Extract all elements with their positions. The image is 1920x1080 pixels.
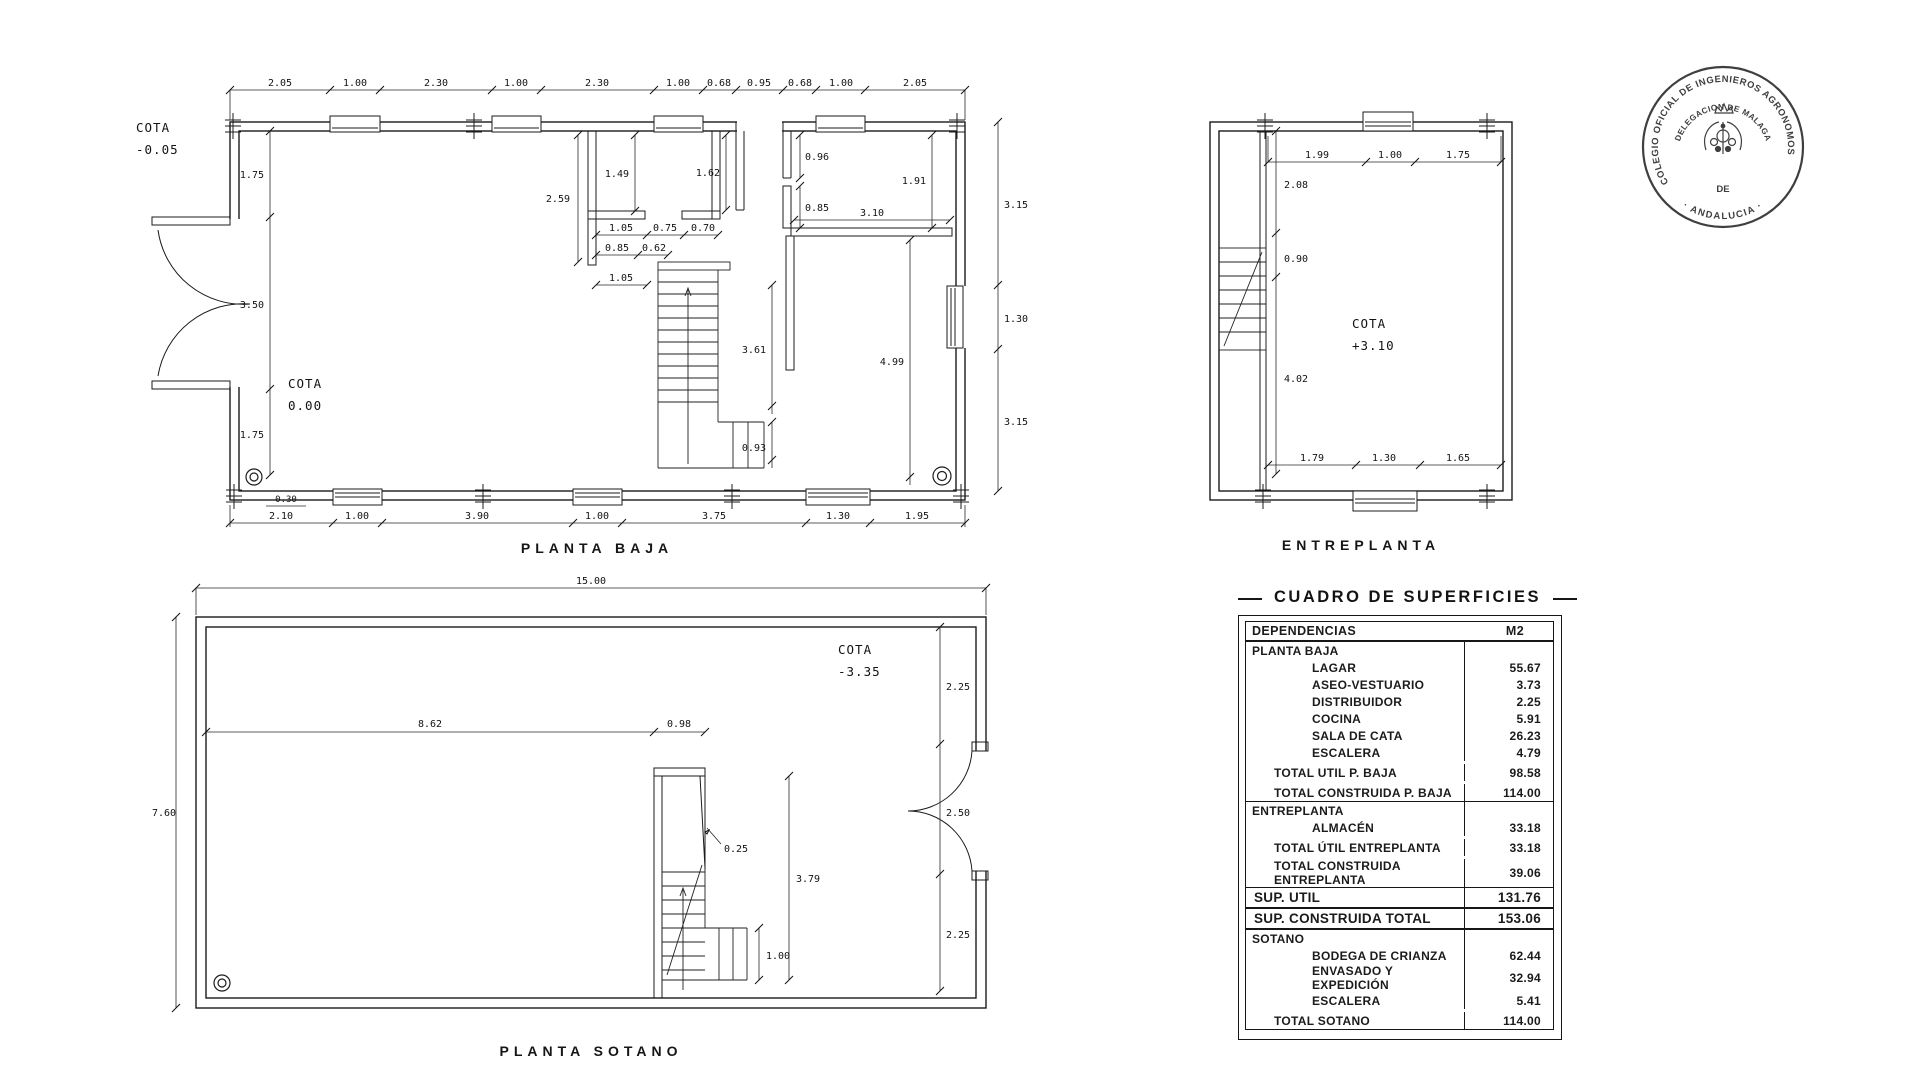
dim-label: 0.30	[275, 495, 297, 505]
wall-break-icon	[1257, 113, 1273, 139]
window	[1353, 491, 1417, 511]
planta-sotano-drawing: 15.00 7.60 2.25 2.50 2.25 8.62 0.98 0.25…	[140, 560, 1040, 1070]
dim-label: 0.90	[1284, 254, 1308, 265]
table-row: COCINA 5.91	[1246, 710, 1553, 727]
cota-label: COTA	[136, 120, 170, 135]
dim-label: 3.79	[796, 874, 820, 885]
partition-wall	[791, 228, 952, 236]
interior-wall-face	[206, 627, 976, 998]
surface-table-header: DEPENDENCIAS M2	[1246, 622, 1553, 641]
table-row: TOTAL UTIL P. BAJA 98.58	[1246, 761, 1553, 781]
dim-label: 1.05	[609, 273, 633, 284]
dim-label: 1.00	[766, 951, 790, 962]
table-row: DISTRIBUIDOR 2.25	[1246, 693, 1553, 710]
dim-label: 1.00	[345, 511, 369, 522]
window	[492, 116, 541, 136]
row-label: TOTAL CONSTRUIDA ENTREPLANTA	[1246, 859, 1465, 887]
dim-label: 0.70	[691, 223, 715, 234]
row-value: 153.06	[1465, 909, 1553, 928]
dim-label: 1.95	[905, 511, 929, 522]
plan-title: PLANTA BAJA	[521, 540, 673, 556]
dim-label: 2.05	[268, 78, 292, 89]
dim-label: 1.00	[1378, 150, 1402, 161]
table-row: SUP. CONSTRUIDA TOTAL 153.06	[1246, 908, 1553, 929]
wall-break-icon	[1479, 484, 1495, 509]
window	[573, 486, 622, 505]
wall-break-icon	[1255, 484, 1271, 509]
table-row: ASEO-VESTUARIO 3.73	[1246, 676, 1553, 693]
table-row: PLANTA BAJA	[1246, 641, 1553, 659]
partition-wall	[654, 768, 705, 776]
surface-table-outer-frame: DEPENDENCIAS M2 PLANTA BAJA LAGAR 55.67 …	[1238, 615, 1562, 1040]
dim-label: 2.25	[946, 682, 970, 693]
row-value: 33.18	[1465, 839, 1553, 856]
dim-label: 3.15	[1004, 200, 1028, 211]
interior-wall-face	[239, 131, 956, 491]
table-row: SALA DE CATA 26.23	[1246, 727, 1553, 744]
row-value: 114.00	[1465, 784, 1553, 801]
row-label: COCINA	[1246, 710, 1465, 727]
window	[947, 286, 966, 348]
entreplanta-plan: 1.99 1.00 1.75 2.08 0.90 4.02 1.79 1.30 …	[1180, 50, 1580, 575]
row-label: ENVASADO Y EXPEDICIÓN	[1246, 964, 1465, 992]
exterior-wall	[230, 122, 965, 500]
cota-label: COTA	[288, 376, 322, 391]
dim-label: 0.75	[653, 223, 677, 234]
plan-title: ENTREPLANTA	[1282, 537, 1440, 553]
cota-label: COTA	[838, 642, 872, 657]
row-value: 39.06	[1465, 859, 1553, 887]
entreplanta-drawing: 1.99 1.00 1.75 2.08 0.90 4.02 1.79 1.30 …	[1180, 50, 1580, 580]
surface-table-title-row: CUADRO DE SUPERFICIES	[1238, 588, 1562, 607]
dim-label: 4.02	[1284, 374, 1308, 385]
dim-label: 3.15	[1004, 417, 1028, 428]
stairs	[1219, 248, 1266, 350]
row-value: 5.41	[1465, 992, 1553, 1009]
row-value: 5.91	[1465, 710, 1553, 727]
row-label: SOTANO	[1246, 930, 1465, 947]
table-row: ALMACÉN 33.18	[1246, 819, 1553, 836]
window	[654, 116, 703, 136]
row-label: TOTAL SOTANO	[1246, 1012, 1465, 1029]
dim-label: 0.68	[707, 78, 731, 89]
row-value: 98.58	[1465, 764, 1553, 781]
porch-wall	[152, 381, 230, 389]
column-marker	[246, 467, 951, 485]
dim-label: 1.05	[609, 223, 633, 234]
row-label: ENTREPLANTA	[1246, 802, 1465, 819]
dim-label: 0.85	[805, 203, 829, 214]
surface-table-body: PLANTA BAJA LAGAR 55.67 ASEO-VESTUARIO 3…	[1246, 641, 1553, 1029]
row-label: ASEO-VESTUARIO	[1246, 676, 1465, 693]
column-header-m2: M2	[1477, 622, 1553, 640]
dim-label: 0.62	[642, 243, 666, 254]
dim-label: 0.25	[724, 844, 748, 855]
dim-label: 1.75	[240, 430, 264, 441]
column-marker	[214, 975, 230, 991]
row-value	[1465, 802, 1553, 819]
dim-label: 1.00	[829, 78, 853, 89]
wall-break-icon	[1479, 113, 1495, 139]
column-header-dependencias: DEPENDENCIAS	[1246, 622, 1477, 640]
row-value: 26.23	[1465, 727, 1553, 744]
dim-label: 2.30	[585, 78, 609, 89]
row-label: TOTAL CONSTRUIDA P. BAJA	[1246, 784, 1465, 801]
table-row: ESCALERA 5.41	[1246, 992, 1553, 1009]
stairs	[658, 262, 764, 468]
dim-label: 1.99	[1305, 150, 1329, 161]
wall-break-icon	[724, 484, 740, 509]
window	[806, 486, 870, 505]
interior-wall-face	[1219, 131, 1503, 491]
porch-wall	[152, 217, 230, 225]
row-label: TOTAL ÚTIL ENTREPLANTA	[1246, 839, 1465, 856]
row-value: 2.25	[1465, 693, 1553, 710]
dim-label: 0.68	[788, 78, 812, 89]
dim-label: 1.00	[504, 78, 528, 89]
row-label: SUP. CONSTRUIDA TOTAL	[1246, 909, 1465, 928]
dim-label: 8.62	[418, 719, 442, 730]
dim-label: 3.90	[465, 511, 489, 522]
table-row: TOTAL ÚTIL ENTREPLANTA 33.18	[1246, 836, 1553, 856]
row-value: 131.76	[1465, 888, 1553, 907]
dim-label: 2.59	[546, 194, 570, 205]
wall-break-icon	[466, 113, 482, 139]
title-dash-icon	[1553, 598, 1577, 600]
dim-label: 2.10	[269, 511, 293, 522]
dim-label: 1.75	[1446, 150, 1470, 161]
dim-label: 0.95	[747, 78, 771, 89]
dim-label: 0.98	[667, 719, 691, 730]
table-row: ENTREPLANTA	[1246, 801, 1553, 819]
dim-label: 15.00	[576, 576, 606, 587]
row-value: 114.00	[1465, 1012, 1553, 1029]
table-row: SOTANO	[1246, 929, 1553, 947]
dim-label: 1.91	[902, 176, 926, 187]
row-label: ESCALERA	[1246, 744, 1465, 761]
planta-sotano-plan: 15.00 7.60 2.25 2.50 2.25 8.62 0.98 0.25…	[140, 560, 1040, 1065]
table-row: TOTAL SOTANO 114.00	[1246, 1009, 1553, 1029]
cota-label: 0.00	[288, 398, 322, 413]
dim-label: 1.75	[240, 170, 264, 181]
dim-label: 2.50	[946, 808, 970, 819]
row-value	[1465, 930, 1553, 947]
dim-label: 1.00	[585, 511, 609, 522]
row-value: 4.79	[1465, 744, 1553, 761]
stamp-de-text: DE	[1716, 184, 1729, 195]
drawing-sheet: { "meta": { "ink": "#1b1b1b", "stamp_col…	[0, 0, 1920, 1080]
window	[333, 486, 382, 505]
table-row: LAGAR 55.67	[1246, 659, 1553, 676]
window	[816, 116, 865, 136]
exterior-wall	[1210, 122, 1512, 500]
row-value: 32.94	[1465, 964, 1553, 992]
dim-label: 2.05	[903, 78, 927, 89]
dim-label: 1.30	[1372, 453, 1396, 464]
dim-label: 0.93	[742, 443, 766, 454]
planta-baja-drawing: 2.05 1.00 2.30 1.00 2.30 1.00 0.68 0.95 …	[100, 50, 1060, 580]
dim-label: 1.00	[343, 78, 367, 89]
dim-label: 1.62	[696, 168, 720, 179]
table-row: SUP. UTIL 131.76	[1246, 887, 1553, 908]
row-label: ESCALERA	[1246, 992, 1465, 1009]
surface-table-title: CUADRO DE SUPERFICIES	[1274, 588, 1541, 607]
dim-label: 2.08	[1284, 180, 1308, 191]
dim-label: 3.61	[742, 345, 766, 356]
dim-label: 0.96	[805, 152, 829, 163]
row-value: 3.73	[1465, 676, 1553, 693]
partition-wall	[786, 236, 794, 370]
dim-label: 3.75	[702, 511, 726, 522]
dim-label: 3.50	[240, 300, 264, 311]
dim-label: 1.00	[666, 78, 690, 89]
table-row: TOTAL CONSTRUIDA P. BAJA 114.00	[1246, 781, 1553, 801]
partition-wall	[1260, 131, 1266, 491]
cota-label: -3.35	[838, 664, 881, 679]
row-value	[1465, 642, 1553, 659]
surface-table: CUADRO DE SUPERFICIES DEPENDENCIAS M2 PL…	[1238, 588, 1562, 1040]
table-row: BODEGA DE CRIANZA 62.44	[1246, 947, 1553, 964]
dim-label: 0.85	[605, 243, 629, 254]
dim-label: 1.65	[1446, 453, 1470, 464]
dim-label: 3.10	[860, 208, 884, 219]
row-label: SUP. UTIL	[1246, 888, 1465, 907]
row-label: PLANTA BAJA	[1246, 642, 1465, 659]
stairs	[662, 865, 747, 990]
cota-label: COTA	[1352, 316, 1386, 331]
wall-break-icon	[475, 484, 491, 509]
row-label: LAGAR	[1246, 659, 1465, 676]
table-row: ENVASADO Y EXPEDICIÓN 32.94	[1246, 964, 1553, 992]
cota-label: +3.10	[1352, 338, 1395, 353]
partition-wall	[654, 768, 705, 998]
window	[330, 116, 380, 136]
row-value: 33.18	[1465, 819, 1553, 836]
dim-label: 2.25	[946, 930, 970, 941]
dim-label: 1.30	[826, 511, 850, 522]
planta-baja-plan: 2.05 1.00 2.30 1.00 2.30 1.00 0.68 0.95 …	[100, 50, 1060, 575]
table-row: ESCALERA 4.79	[1246, 744, 1553, 761]
window	[1363, 112, 1413, 131]
partition-wall	[783, 186, 791, 228]
row-label: SALA DE CATA	[1246, 727, 1465, 744]
row-label: TOTAL UTIL P. BAJA	[1246, 764, 1465, 781]
stamp-ring-bottom-text: · ANDALUCIA ·	[1681, 200, 1765, 222]
row-value: 62.44	[1465, 947, 1553, 964]
surface-table-frame: DEPENDENCIAS M2 PLANTA BAJA LAGAR 55.67 …	[1245, 621, 1554, 1030]
dim-label: 1.79	[1300, 453, 1324, 464]
row-label: BODEGA DE CRIANZA	[1246, 947, 1465, 964]
dim-label: 1.30	[1004, 314, 1028, 325]
title-dash-icon	[1238, 598, 1262, 600]
partition-wall	[588, 131, 596, 265]
dim-label: 2.30	[424, 78, 448, 89]
row-label: ALMACÉN	[1246, 819, 1465, 836]
official-stamp: COLEGIO OFICIAL DE INGENIEROS AGRONOMOS …	[1628, 52, 1818, 247]
wall-break-icon	[949, 113, 965, 139]
dim-label: 7.60	[152, 808, 176, 819]
dim-label: 4.99	[880, 357, 904, 368]
row-value: 55.67	[1465, 659, 1553, 676]
row-label: DISTRIBUIDOR	[1246, 693, 1465, 710]
partition-wall	[682, 211, 720, 219]
plan-title: PLANTA SOTANO	[500, 1043, 683, 1059]
dim-label: 1.49	[605, 169, 629, 180]
partition-wall	[588, 211, 645, 219]
cota-label: -0.05	[136, 142, 179, 157]
table-row: TOTAL CONSTRUIDA ENTREPLANTA 39.06	[1246, 856, 1553, 887]
